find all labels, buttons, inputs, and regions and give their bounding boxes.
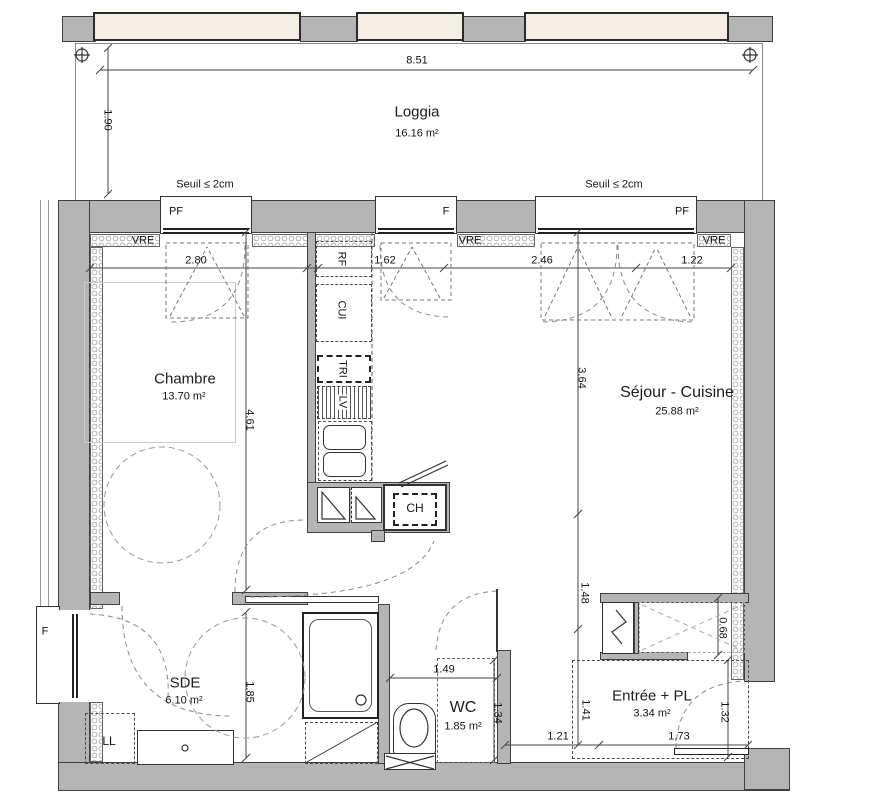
room-label-loggia: Loggia — [394, 105, 439, 120]
window-f-left-frame — [36, 606, 60, 704]
appliance-label-dishwasher: LV — [337, 395, 348, 410]
railing-panel-1 — [93, 12, 301, 41]
railing-panel-3 — [524, 12, 729, 41]
window-label-f-left: F — [42, 627, 49, 638]
left-outer-rail — [40, 200, 49, 608]
window-pf2-glazing — [538, 228, 694, 234]
appliance-label-tri: TRI — [337, 360, 348, 378]
entry-door-leaf — [674, 748, 749, 755]
dim-loggia-depth: 1.90 — [102, 109, 113, 130]
dim-entree-width2: 1,73 — [668, 732, 689, 743]
wall-right — [744, 200, 775, 682]
sink-bowl-2 — [323, 452, 366, 477]
appliance-label-cooking: CUI — [336, 301, 347, 320]
counter-box-2 — [351, 487, 382, 523]
window-label-vre1: VRE — [132, 236, 155, 247]
area-label-entree: 3.34 m² — [633, 709, 670, 720]
area-label-loggia: 16.16 m² — [395, 129, 438, 140]
window-pf1-glazing — [163, 228, 249, 234]
railing-pier-a — [300, 16, 358, 42]
dim-sejour-width2: 1.22 — [681, 256, 702, 267]
sde-sliding-door — [245, 596, 379, 603]
area-label-sde: 6.10 m² — [165, 696, 202, 707]
wall-chambre-sde-a — [90, 592, 120, 605]
window-swing-panels — [166, 243, 694, 320]
window-label-pf2: PF — [675, 207, 689, 218]
counter-box-1 — [317, 487, 350, 523]
dim-entree-height2: 1.32 — [719, 701, 730, 722]
seuil-note-left: Seuil ≤ 2cm — [176, 180, 233, 191]
appliance-label-fridge: RF — [336, 252, 347, 267]
appliance-label-washer: LL — [102, 735, 115, 747]
dim-closet-depth: 0.68 — [717, 617, 728, 638]
dim-sejour-width1: 2.46 — [531, 256, 552, 267]
railing-panel-2 — [356, 12, 464, 41]
wardrobe-box — [639, 602, 745, 653]
window-label-pf1: PF — [169, 207, 183, 218]
seuil-note-right: Seuil ≤ 2cm — [585, 180, 642, 191]
area-label-chambre: 13.70 m² — [162, 392, 205, 403]
sink-bowl-1 — [323, 425, 366, 450]
dim-sejour-height: 3.64 — [576, 367, 587, 388]
window-label-vre2: VRE — [459, 236, 482, 247]
floor-plan: 8.51 1.90 Loggia 16.16 m² Seuil ≤ 2cm Se… — [0, 0, 869, 800]
area-label-wc: 1.85 m² — [444, 722, 481, 733]
room-label-chambre: Chambre — [154, 372, 216, 387]
room-label-sejour: Séjour - Cuisine — [620, 385, 734, 401]
window-f-top-glazing — [378, 228, 454, 234]
dim-chambre-height: 4.61 — [244, 409, 255, 430]
shower-inner — [309, 619, 372, 712]
electrical-panel-box — [602, 602, 634, 654]
dim-sde-height: 1.85 — [244, 681, 255, 702]
dim-wc-width: 1.49 — [433, 665, 454, 676]
shower-screen-box — [305, 722, 378, 764]
loggia-floor — [75, 43, 763, 200]
dim-kitchen-width: 1.62 — [374, 256, 395, 267]
window-label-vre3: VRE — [703, 236, 726, 247]
railing-pier-b — [462, 16, 526, 42]
room-label-sde: SDE — [170, 676, 201, 691]
dim-sejour-height2: 1.48 — [579, 582, 590, 603]
toilet-tank — [384, 753, 436, 770]
vanity-unit — [137, 730, 234, 765]
room-label-entree: Entrée + PL — [612, 689, 692, 704]
room-label-wc: WC — [450, 700, 477, 716]
railing-pier-right — [727, 16, 773, 42]
wall-sde-right — [378, 604, 390, 764]
dim-entree-height: 1.41 — [580, 699, 591, 720]
railing-pier-left — [62, 16, 96, 42]
appliance-label-water-heater: CH — [406, 502, 423, 514]
dim-wc-height: 1.34 — [492, 702, 503, 723]
window-label-f-top: F — [443, 207, 450, 218]
dim-chambre-width: 2.80 — [185, 256, 206, 267]
bed-outline — [84, 282, 236, 443]
area-label-sejour: 25.88 m² — [655, 407, 698, 418]
dim-entree-width1: 1.21 — [547, 732, 568, 743]
toilet-bowl-outline — [393, 703, 436, 755]
window-f-left-glazing — [72, 614, 78, 698]
wall-bottom-right-block — [744, 748, 790, 790]
dim-loggia-width: 8.51 — [406, 56, 427, 67]
kitchen-door-stub — [371, 530, 385, 542]
